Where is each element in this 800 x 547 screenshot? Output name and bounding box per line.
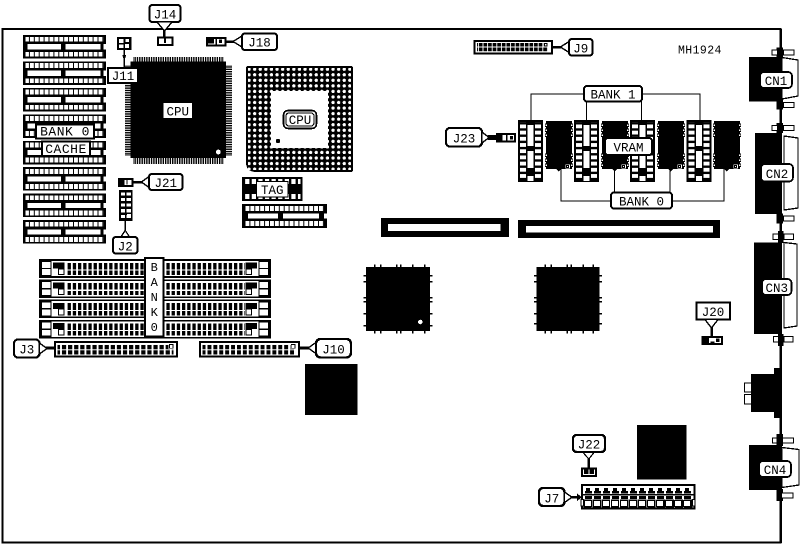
svg-text:J11: J11	[112, 70, 135, 84]
svg-text:CACHE: CACHE	[45, 142, 87, 157]
svg-text:MH1924: MH1924	[678, 45, 722, 58]
svg-text:A: A	[151, 276, 159, 290]
svg-text:BANK 0: BANK 0	[40, 125, 90, 140]
svg-text:J21: J21	[155, 177, 178, 191]
svg-text:B: B	[151, 261, 158, 275]
svg-text:J18: J18	[248, 37, 271, 51]
svg-text:J20: J20	[702, 306, 725, 320]
svg-text:J9: J9	[573, 43, 588, 57]
svg-text:TAG: TAG	[261, 184, 284, 198]
svg-text:J14: J14	[154, 9, 177, 23]
svg-text:J3: J3	[19, 344, 34, 358]
svg-text:N: N	[151, 291, 158, 305]
svg-text:J2: J2	[118, 241, 133, 255]
svg-text:CPU: CPU	[289, 114, 312, 128]
svg-text:CPU: CPU	[167, 106, 190, 120]
svg-text:CN2: CN2	[766, 168, 789, 182]
svg-text:J22: J22	[578, 439, 601, 453]
svg-text:J23: J23	[453, 133, 476, 147]
svg-text:J7: J7	[544, 493, 559, 507]
svg-text:VRAM: VRAM	[613, 142, 643, 156]
svg-text:CN4: CN4	[764, 464, 787, 478]
svg-text:CN3: CN3	[766, 282, 789, 296]
svg-text:BANK 1: BANK 1	[590, 89, 635, 103]
svg-text:CN1: CN1	[765, 75, 788, 89]
svg-text:J10: J10	[322, 344, 345, 358]
svg-text:BANK 0: BANK 0	[619, 196, 664, 210]
svg-text:0: 0	[151, 321, 158, 335]
svg-text:K: K	[151, 306, 159, 320]
